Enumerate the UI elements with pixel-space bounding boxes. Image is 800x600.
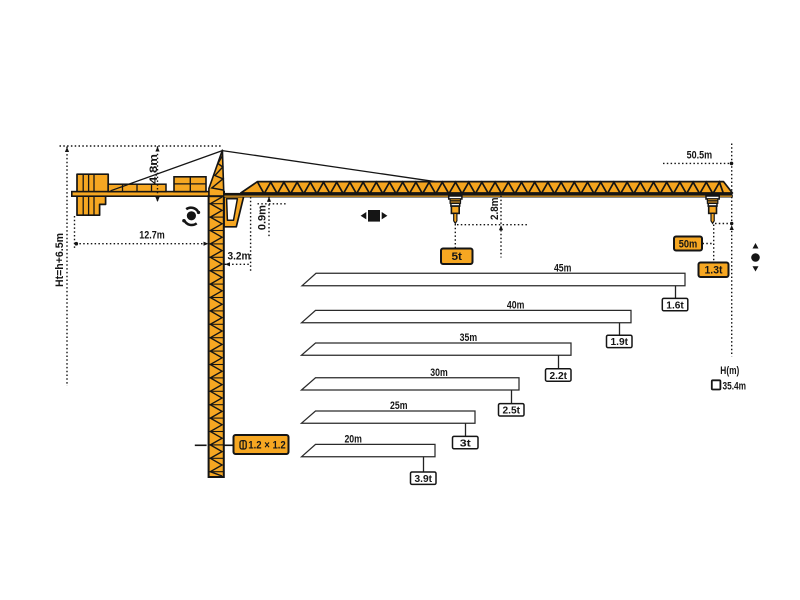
- svg-text:12.7m: 12.7m: [139, 230, 165, 242]
- svg-text:5t: 5t: [452, 251, 463, 263]
- svg-text:1.2 × 1.2: 1.2 × 1.2: [248, 440, 286, 452]
- svg-text:45m: 45m: [554, 262, 572, 274]
- svg-text:1.6t: 1.6t: [666, 300, 684, 311]
- svg-text:40m: 40m: [507, 299, 525, 311]
- svg-text:1.9t: 1.9t: [611, 337, 629, 348]
- svg-text:2.2t: 2.2t: [550, 371, 568, 382]
- svg-text:3.9t: 3.9t: [415, 474, 433, 485]
- svg-text:0.9m: 0.9m: [257, 205, 269, 230]
- svg-text:2.8m: 2.8m: [489, 197, 501, 220]
- svg-text:35.4m: 35.4m: [723, 381, 747, 393]
- svg-text:25m: 25m: [390, 400, 408, 412]
- svg-text:3.2m: 3.2m: [228, 250, 251, 262]
- svg-text:H(m): H(m): [720, 365, 739, 377]
- svg-text:3t: 3t: [460, 438, 472, 449]
- svg-text:2.5t: 2.5t: [503, 406, 521, 417]
- svg-text:20m: 20m: [344, 433, 362, 445]
- svg-text:1.3t: 1.3t: [705, 265, 723, 277]
- svg-text:50.5m: 50.5m: [687, 149, 713, 161]
- svg-text:Ht=h+6.5m: Ht=h+6.5m: [54, 233, 66, 287]
- svg-text:4.8m: 4.8m: [148, 154, 160, 184]
- svg-text:50m: 50m: [679, 238, 698, 250]
- svg-text:35m: 35m: [460, 332, 478, 344]
- svg-text:30m: 30m: [430, 367, 448, 379]
